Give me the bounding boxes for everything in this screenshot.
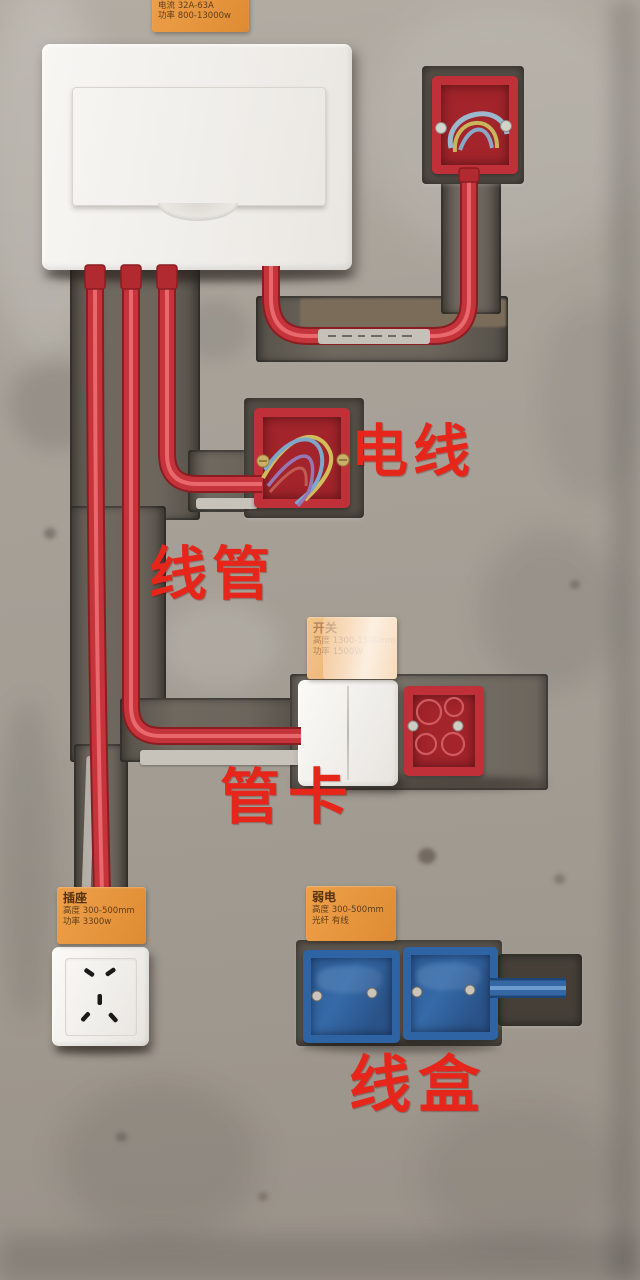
wires-topright-box [450, 114, 507, 152]
label-weak-current-line1: 高度 300-500mm [312, 905, 390, 916]
label-socket: 插座 高度 300-500mm 功率 3300w [57, 887, 146, 944]
label-weak-current-title: 弱电 [312, 890, 390, 905]
wires-middle-box [263, 437, 331, 506]
label-distribution-line2: 电流 32A-63A [158, 1, 243, 12]
label-weak-current: 弱电 高度 300-500mm 光纤 有线 [306, 886, 396, 941]
label-distribution-line3: 功率 800-13000w [158, 11, 243, 22]
annotation-junction-box: 线盒 [349, 1054, 487, 1116]
socket-holes [80, 967, 118, 1023]
label-weak-current-line2: 光纤 有线 [312, 916, 390, 927]
wall-photo: 高度 1500-1800mm 电流 32A-63A 功率 800-13000w … [0, 0, 640, 1280]
label-switch-glare [323, 617, 397, 679]
annotation-clamp: 管卡 [220, 768, 356, 828]
label-switch: 开关 高度 1300-1500mm 功率 1500W [307, 617, 397, 679]
annotation-conduit: 线管 [149, 545, 275, 603]
screws-blue-boxes [312, 985, 475, 1001]
label-socket-line1: 高度 300-500mm [63, 906, 140, 917]
label-distribution: 高度 1500-1800mm 电流 32A-63A 功率 800-13000w [152, 0, 249, 32]
label-socket-line2: 功率 3300w [63, 917, 140, 928]
annotation-wire: 电线 [351, 424, 475, 481]
label-socket-title: 插座 [63, 891, 140, 906]
